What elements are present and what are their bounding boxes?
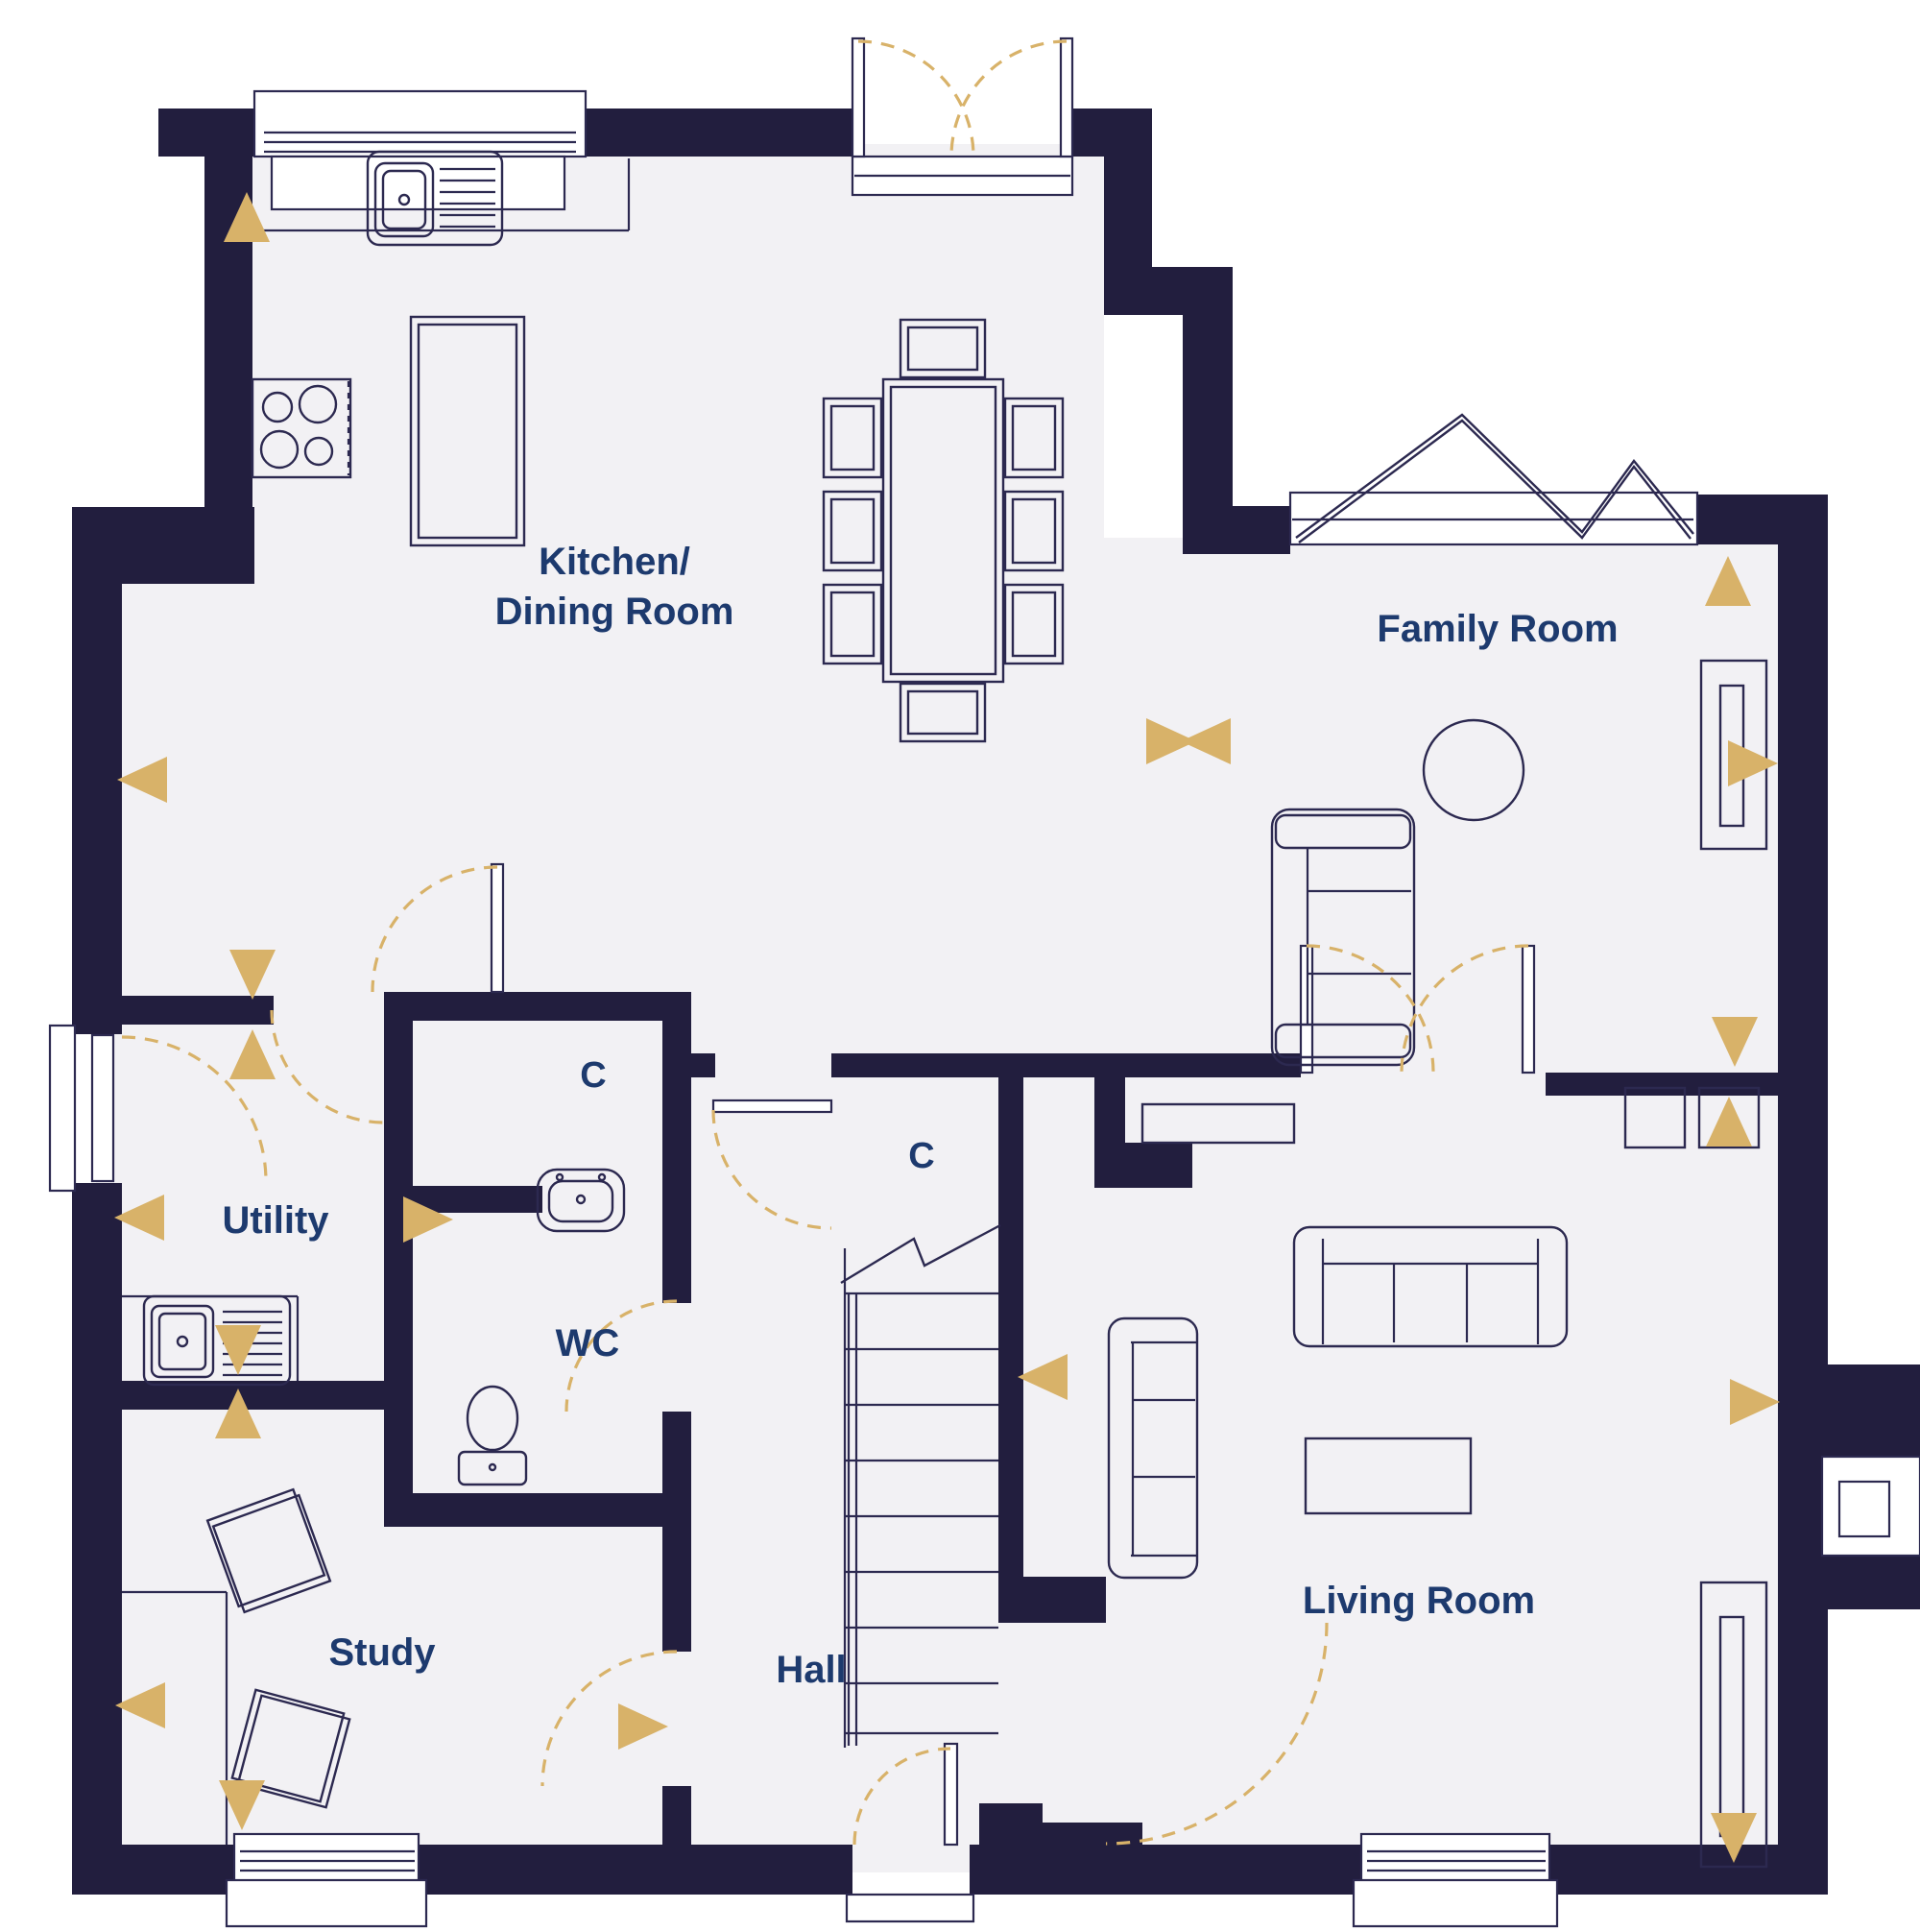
- side-door-leaf: [92, 1035, 113, 1181]
- room-label-utility: Utility: [222, 1199, 329, 1242]
- wall: [662, 1786, 691, 1845]
- wall: [72, 507, 254, 584]
- wall: [1072, 109, 1152, 157]
- wall: [384, 1493, 672, 1527]
- floor-plan: Kitchen/Dining RoomFamily RoomUtilityCCW…: [0, 0, 1920, 1932]
- wall: [576, 109, 852, 157]
- wall: [662, 992, 691, 1053]
- room-label-wc: WC: [556, 1322, 620, 1364]
- wall: [831, 1053, 1301, 1077]
- window-niche-inner: [1839, 1482, 1889, 1536]
- window-study-sill: [227, 1880, 426, 1926]
- french-door-leaf-left: [852, 38, 864, 157]
- wall: [1546, 1073, 1778, 1096]
- room-label-kitchen-line2: Dining Room: [495, 591, 734, 633]
- wall: [1778, 1364, 1920, 1461]
- floor-plan-drawing: Kitchen/Dining RoomFamily RoomUtilityCCW…: [0, 0, 1920, 1932]
- front-door-sill: [847, 1895, 973, 1921]
- kitchen-hall-door-leaf: [713, 1100, 831, 1112]
- room-label-kitchen-line1: Kitchen/: [539, 541, 690, 583]
- window-kitchen-sill: [272, 157, 564, 209]
- french-door-swing-right: [951, 41, 1067, 157]
- french-door-leaf-right: [1061, 38, 1072, 157]
- wall: [1778, 495, 1828, 1364]
- wall: [72, 584, 122, 1034]
- vestibule-door-leaf: [492, 864, 503, 992]
- wall: [662, 1053, 715, 1077]
- room-label-hall: Hall: [776, 1649, 846, 1691]
- wall: [998, 1077, 1023, 1577]
- wall: [158, 109, 267, 157]
- french-door-swing-left: [858, 41, 973, 157]
- floor-area: [1102, 538, 1236, 1075]
- floor-area: [96, 509, 1104, 1872]
- room-label-living: Living Room: [1303, 1580, 1535, 1622]
- family-door-leaf-right: [1523, 946, 1534, 1073]
- wall: [1183, 315, 1233, 554]
- wall: [413, 992, 672, 1021]
- floor-area: [1104, 1056, 1797, 1872]
- wall: [1778, 1461, 1828, 1552]
- wall: [1778, 1552, 1920, 1609]
- wall: [384, 992, 413, 1215]
- wall: [72, 1183, 122, 1895]
- side-door-sill: [50, 1026, 75, 1191]
- room-label-family: Family Room: [1377, 608, 1618, 650]
- wall: [662, 1527, 691, 1652]
- wall: [1104, 267, 1233, 315]
- window-living-sill: [1354, 1880, 1557, 1926]
- wall: [122, 996, 274, 1025]
- room-label-cupboard-1: C: [580, 1055, 606, 1096]
- front-door-leaf: [945, 1744, 957, 1845]
- room-label-cupboard-2: C: [908, 1136, 934, 1176]
- wall: [384, 1213, 413, 1493]
- wall: [1096, 1143, 1192, 1188]
- wall: [970, 1845, 1373, 1895]
- wall: [72, 1845, 248, 1895]
- room-label-study: Study: [328, 1631, 436, 1674]
- wall: [405, 1845, 852, 1895]
- wall: [1778, 1609, 1828, 1895]
- wall: [998, 1577, 1106, 1623]
- wall: [1233, 506, 1290, 554]
- wall: [662, 1053, 691, 1303]
- window-kitchen: [254, 91, 586, 157]
